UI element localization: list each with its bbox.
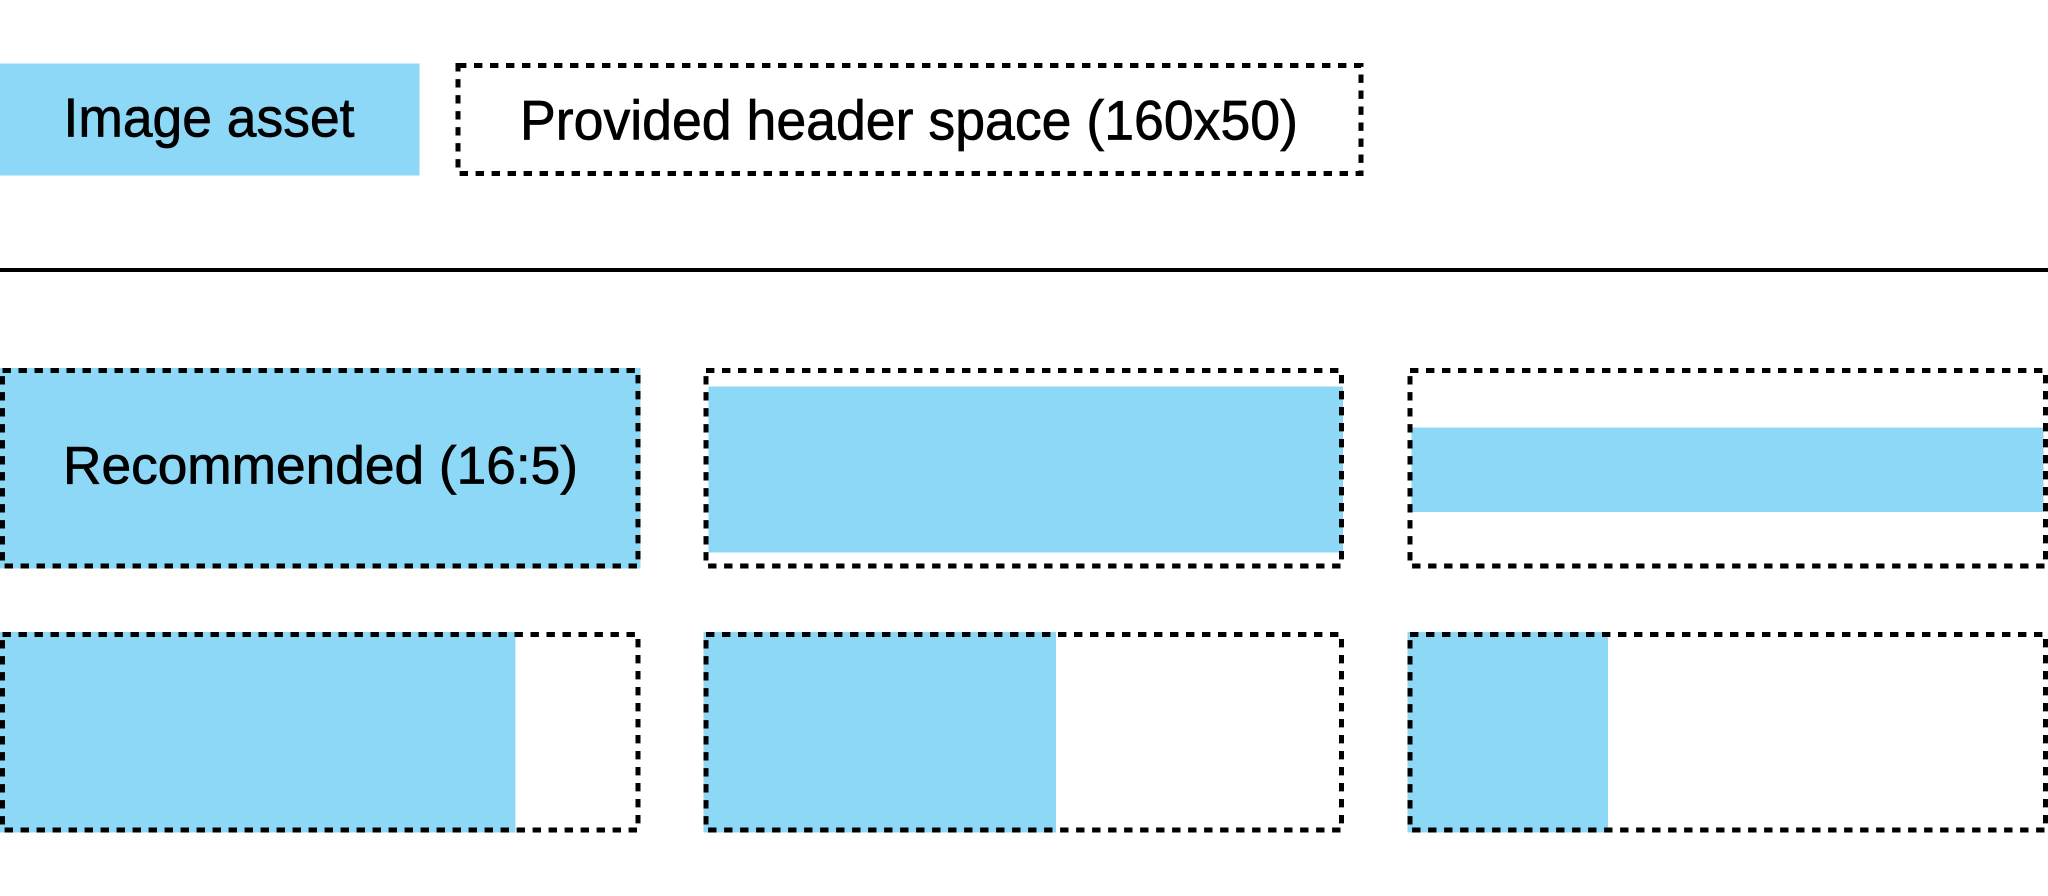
- svg-text:Image asset: Image asset: [64, 87, 355, 149]
- svg-text:Provided header space (160x50): Provided header space (160x50): [520, 89, 1298, 152]
- svg-text:Recommended (16:5): Recommended (16:5): [63, 437, 578, 496]
